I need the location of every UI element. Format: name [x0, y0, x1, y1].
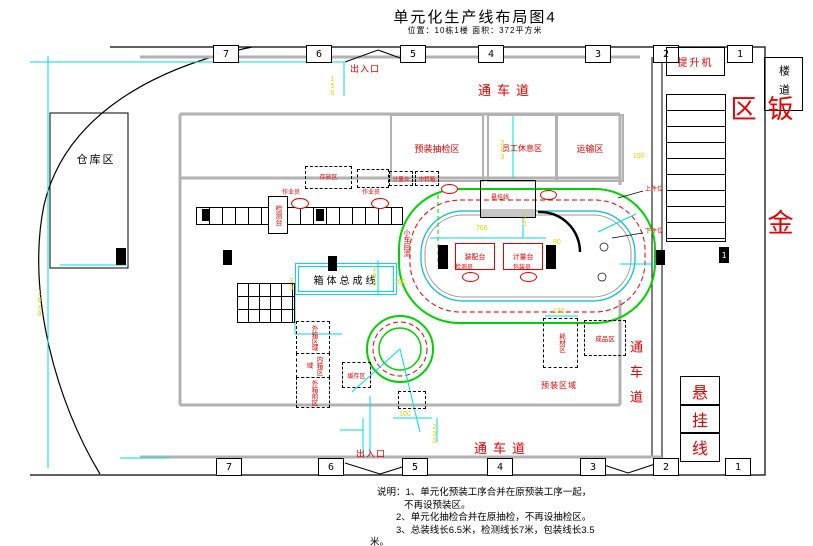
dim-283: 283 [499, 140, 506, 161]
grid-top-4: 4 [478, 45, 504, 63]
dim-130: 130 [553, 308, 565, 315]
operator-a-label: 作业员 [282, 190, 300, 196]
note-line-4: 3、总装线长6.5米，检测线长7米，包装线长3.5 [396, 525, 594, 538]
operator-a-oval [291, 198, 309, 209]
staff-rest-label: 员工休息区 [502, 143, 542, 154]
column-marker-5: 1 [719, 247, 729, 263]
dim-80: 80 [553, 239, 561, 246]
buffer-box: 缓存区 [342, 362, 371, 388]
page-title: 单元化生产线布局图4 [295, 6, 655, 27]
box-assembly-line-box: 箱体总成线 [298, 266, 394, 292]
lift-box: 提升机 [666, 47, 725, 76]
unload-point-label: 下件位 [645, 229, 663, 235]
road-right-label: 通车道 [626, 340, 645, 430]
grid-bottom-3: 3 [580, 458, 606, 476]
dim-100-mid: 100 [394, 279, 406, 286]
small-dashed-box [398, 391, 426, 409]
storage-label: 存放区 [319, 175, 337, 181]
column-marker-1 [116, 248, 126, 265]
transport-room: 运输区 [556, 114, 624, 182]
hanging-line-box-3: 线 [680, 432, 720, 462]
test-station-label: 检测台 [273, 205, 283, 226]
preassembly-area-label: 预装区域 [541, 380, 577, 391]
dim-230: 230 [431, 424, 438, 445]
page-subtitle: 位置：10栋1楼 面积：372平方米 [295, 25, 655, 36]
layout-drawing: 单元化生产线布局图4 位置：10栋1楼 面积：372平方米 7 6 5 4 3 … [0, 0, 813, 546]
dim-150-right: 150 [633, 153, 645, 160]
dim-30: 30 [288, 278, 295, 292]
pallet-rack-grid [237, 283, 295, 323]
grid-bottom-7: 7 [216, 458, 242, 476]
entrance-bottom-label: 出入口 [356, 447, 386, 460]
stairs [666, 94, 726, 242]
inspector-oval [462, 272, 479, 282]
finished-goods-box: 成品区 [584, 320, 626, 356]
metering-small-box: 计量台 [389, 171, 413, 186]
staff-rest-room: 员工休息区 [487, 114, 557, 182]
warehouse-outline [50, 113, 128, 268]
column-marker-3 [328, 256, 337, 271]
packer-label: 包装员 [513, 265, 531, 271]
grid-bottom-4: 4 [487, 458, 513, 476]
packer-oval [520, 272, 537, 282]
inspector-label: 检测员 [455, 265, 473, 271]
inner-carton-box: 内箱区域 [296, 353, 330, 378]
hanging-line-box-2: 挂 [680, 404, 720, 434]
operator-b-oval [371, 198, 389, 209]
dim-766: 766 [476, 225, 488, 232]
note-line-2: 不再设预装区。 [404, 500, 594, 513]
note-line-3: 2、单元化抽检合并在原抽检，不再设抽检区。 [396, 512, 594, 525]
left-curved-wall [39, 47, 252, 474]
dim-18x9: 18x9 [36, 290, 43, 318]
dim-186: 186 [371, 266, 378, 287]
storage-rack-box: 存放区 [305, 166, 352, 189]
hanging-line-char-2: 挂 [692, 407, 708, 431]
column-marker-4 [656, 250, 665, 265]
outer-carton-label: 外箱区域 [308, 325, 318, 351]
door-triangle-bottom-right [598, 463, 658, 473]
hanging-line-small-label: 悬挂线 [491, 195, 509, 201]
column-marker-2 [223, 250, 232, 265]
transfer-box-label: 中转箱 [419, 175, 436, 183]
dim-50: 50 [521, 214, 528, 228]
sheet-metal-zone-label: 钣金区 [724, 95, 798, 395]
conveyor-marker-1 [202, 209, 210, 221]
operator-b-label: 作业员 [362, 190, 380, 196]
grid-bottom-2: 2 [653, 458, 679, 476]
grid-top-5: 5 [400, 45, 426, 63]
grid-top-3: 3 [585, 45, 611, 63]
warehouse-label: 仓库区 [66, 151, 126, 167]
transfer-box: 中转箱 [415, 171, 439, 186]
hanging-line-char-1: 悬 [692, 379, 708, 403]
assembly-conveyor [196, 207, 403, 225]
road-bottom-label: 通车道 [474, 438, 531, 457]
assembly-station-label: 装配台 [465, 252, 486, 262]
transport-label: 运输区 [576, 142, 603, 155]
loop-top-oval-1 [441, 184, 458, 194]
note-line-1: 说明：1、单元化预装工序合并在原预装工序一起， [377, 487, 594, 500]
loop-station-marker-1 [438, 245, 448, 269]
grid-bottom-5: 5 [402, 458, 428, 476]
preassembly-inspection-label: 预装抽检区 [414, 142, 459, 155]
trolley-return-label: 小车回流 [401, 229, 411, 271]
note-line-5: 米。 [370, 537, 594, 546]
notes-block: 说明：1、单元化预装工序合并在原预装工序一起， 不再设预装区。 2、单元化抽检合… [370, 487, 594, 546]
hanging-line-box-1: 悬 [680, 376, 720, 406]
grid-bottom-6: 6 [318, 458, 344, 476]
box-assembly-line-label: 箱体总成线 [314, 272, 379, 287]
loop-station-marker-2 [546, 245, 556, 269]
road-top-label: 通车道 [478, 80, 535, 99]
outer-carton-box: 外箱区域 [296, 321, 330, 354]
loop-top-oval-2 [540, 190, 557, 200]
outer-carton-front-label: 外箱前区 [308, 380, 318, 406]
finished-goods-label: 成品区 [595, 333, 615, 343]
dim-100-bottom: 100 [399, 411, 411, 418]
metering-station-label: 计量台 [513, 252, 534, 262]
hanging-line-machine: 悬挂线 [480, 180, 536, 218]
metering-small-label: 计量台 [393, 175, 410, 183]
grid-top-7: 7 [213, 45, 239, 63]
test-station-box: 检测台 [268, 196, 288, 234]
grid-top-1: 1 [727, 45, 753, 63]
buffer-label: 缓存区 [347, 371, 365, 380]
consumables-box: 耗材区 [543, 318, 578, 368]
load-point-label: 上件位 [645, 187, 663, 193]
lift-label: 提升机 [678, 54, 714, 69]
entrance-top-label: 出入口 [350, 62, 380, 75]
consumables-label: 耗材区 [556, 333, 566, 353]
grid-top-6: 6 [306, 45, 332, 63]
hanging-line-char-3: 线 [692, 435, 708, 459]
rack-box-2 [357, 169, 389, 188]
dim-150-left: 150 [329, 76, 336, 97]
grid-bottom-1: 1 [725, 458, 751, 476]
outer-carton-front-box: 外箱前区 [296, 377, 330, 408]
conveyor-marker-2 [316, 209, 324, 221]
inner-carton-label: 内箱区域 [303, 354, 323, 377]
